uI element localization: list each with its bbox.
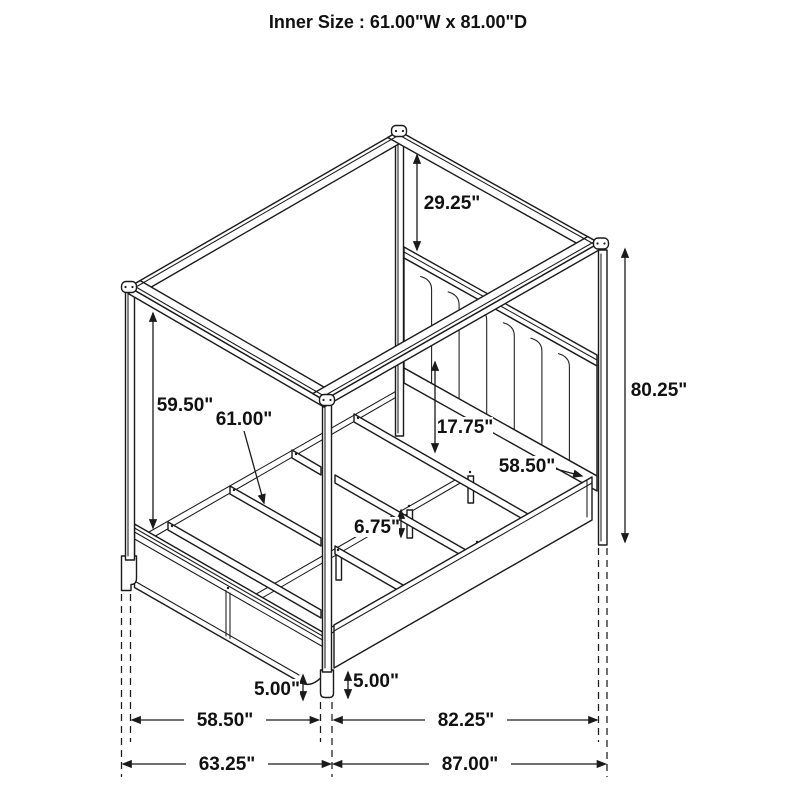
dim-label-overall-width: 63.25": [199, 754, 256, 775]
canopy-rail-front-left: [129, 281, 335, 400]
canopy-rail-front-left-side: [129, 287, 324, 407]
left-post: [126, 287, 135, 560]
bed-slat: [230, 486, 321, 546]
bed-slat: [335, 546, 403, 593]
drawer-dot: [227, 587, 229, 589]
dim-label-overall-height: 80.25": [631, 380, 688, 401]
back-post: [396, 131, 404, 436]
dim-label-siderail-length: 82.25": [438, 710, 495, 731]
dim-label-clearance-left: 5.00": [254, 679, 300, 700]
dim-label-rail-to-headboard: 17.75": [437, 417, 494, 438]
dim-label-clearance-right: 5.00": [353, 671, 399, 692]
corner-cap: [320, 395, 335, 406]
corner-cap: [594, 238, 609, 249]
dimension-diagram: 29.25" 80.25" 59.50" 61.00" 17.75" 58.50…: [0, 0, 800, 800]
corner-cap: [122, 282, 137, 293]
headboard: [404, 247, 597, 491]
canopy-rail-back-left: [129, 131, 410, 293]
canopy-rail-back-right: [388, 131, 599, 250]
dim-label-post-height: 59.50": [157, 395, 214, 416]
dim-label-inner-width: 61.00": [216, 409, 273, 430]
dim-label-footboard-width: 58.50": [197, 710, 254, 731]
footboard: [135, 524, 323, 684]
right-post: [599, 250, 608, 545]
corner-cap: [392, 126, 407, 137]
dim-label-headboard-width: 58.50": [499, 456, 556, 477]
dim-label-overall-depth: 87.00": [442, 754, 499, 775]
diagram-title: Inner Size : 61.00"W x 81.00"D: [269, 12, 527, 32]
dim-label-canopy-gap: 29.25": [424, 193, 481, 214]
front-post-foot: [321, 670, 334, 698]
front-post: [323, 400, 332, 672]
canopy-bed-drawing: 29.25" 80.25" 59.50" 61.00" 17.75" 58.50…: [0, 0, 800, 800]
leader-inner-width: [244, 431, 264, 503]
dim-label-support-leg: 6.75": [354, 517, 400, 538]
